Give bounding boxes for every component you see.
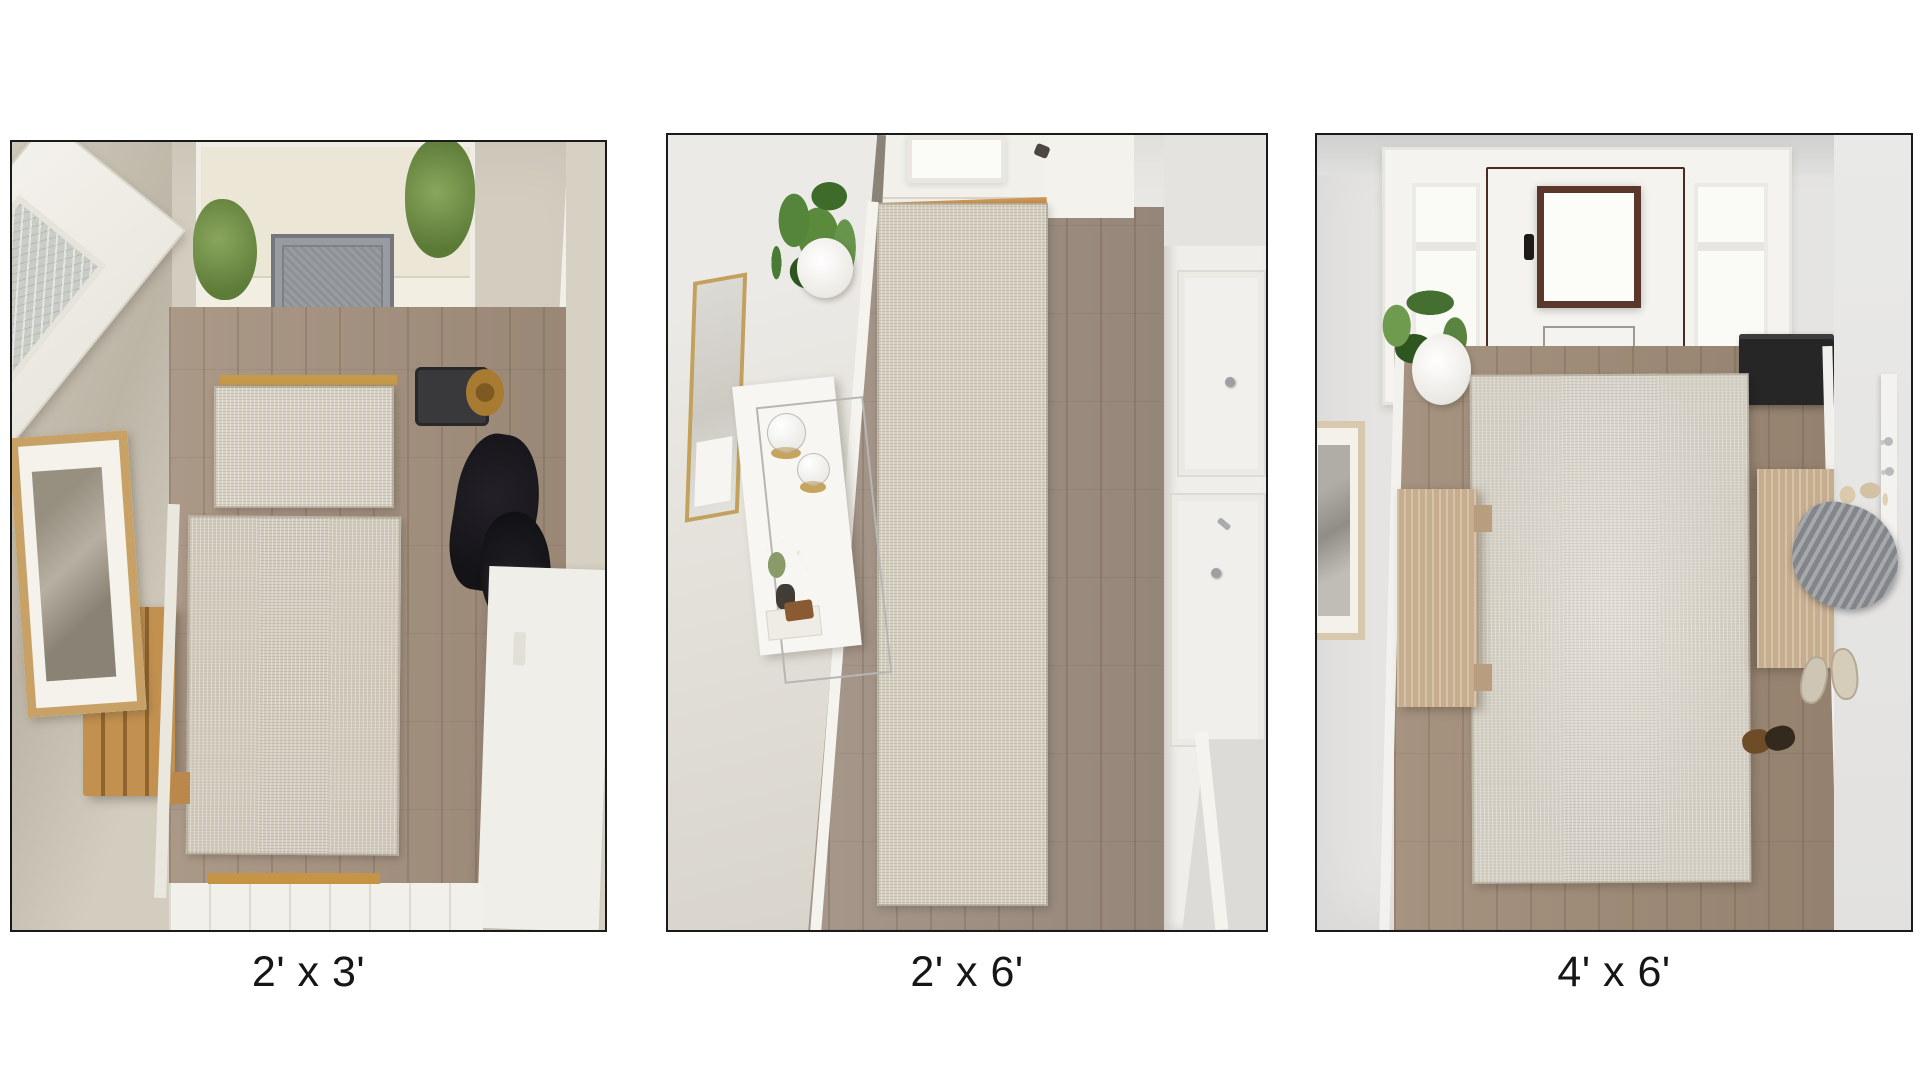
panel-4x6: 4' x 6' — [1315, 133, 1913, 1033]
oak-bench-left — [1397, 489, 1477, 708]
bottom-threshold — [208, 873, 380, 884]
door-knob — [1524, 234, 1535, 259]
large-area-rug — [1470, 373, 1752, 883]
bench-leg — [169, 772, 190, 804]
rug-size-label-4x6: 4' x 6' — [1315, 948, 1913, 997]
art-print — [32, 467, 117, 681]
framed-wall-art — [1315, 421, 1365, 640]
white-corner-wall — [477, 566, 607, 932]
leather-accessory — [783, 599, 813, 622]
entryway-photo-4x6 — [1315, 133, 1913, 932]
mirror-reflection — [694, 436, 733, 507]
closet-door-upper — [1177, 270, 1266, 477]
bench-leg — [1474, 505, 1492, 533]
runner-rug — [877, 203, 1047, 907]
panel-2x3: 2' x 3' — [10, 140, 607, 1040]
large-beige-rug — [186, 516, 402, 856]
entryway-photo-2x3 — [10, 140, 607, 932]
framed-wall-art — [10, 430, 146, 717]
small-beige-rug — [214, 386, 395, 508]
panel-2x6: 2' x 6' — [666, 133, 1268, 1033]
window-mullion — [1698, 242, 1764, 251]
straw-hat — [466, 369, 505, 416]
rug-size-label-2x6: 2' x 6' — [666, 948, 1268, 997]
door-threshold — [220, 375, 398, 385]
closet-door-lower — [1170, 493, 1266, 747]
door-glass-window — [1537, 186, 1641, 308]
art-print — [1318, 445, 1349, 617]
upper-wall — [1164, 135, 1266, 246]
rug-size-comparison-figure: 2' x 3' — [0, 0, 1920, 1080]
garden-bush-left — [193, 199, 257, 300]
window-mullion — [1416, 242, 1476, 251]
white-plant-pot — [797, 238, 854, 298]
glass-cloche — [767, 413, 806, 453]
hook-rail — [1881, 374, 1896, 549]
rug-size-label-2x3: 2' x 3' — [10, 948, 607, 997]
door-frosted-window — [907, 135, 1006, 183]
bottom-door-trim — [169, 883, 483, 930]
wall-hook — [1884, 437, 1893, 446]
black-storage-bin — [1739, 334, 1834, 406]
garden-bush-right — [405, 140, 475, 258]
bench-leg — [1474, 664, 1492, 692]
light-switch — [513, 632, 526, 665]
hallway-photo-2x6 — [666, 133, 1268, 932]
